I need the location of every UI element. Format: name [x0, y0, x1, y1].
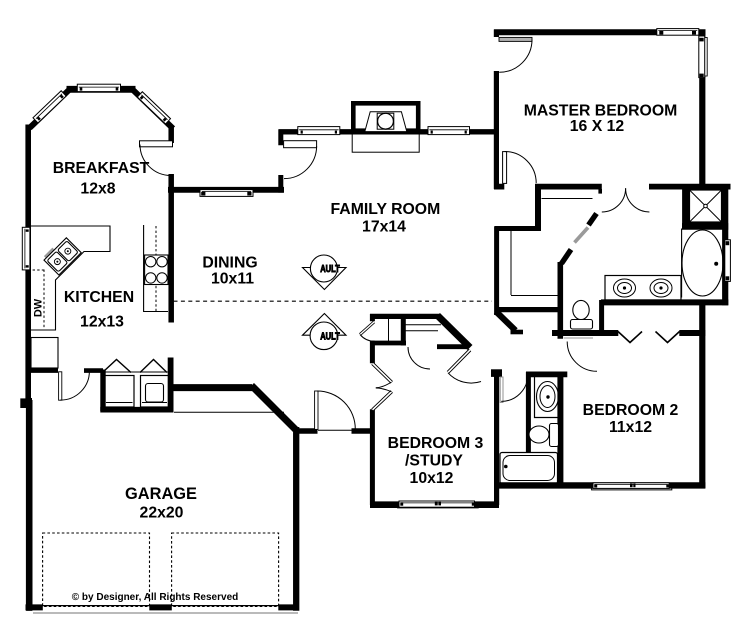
svg-text:© by Designer, All Rights Rese: © by Designer, All Rights Reserved	[72, 592, 239, 603]
svg-text:DW: DW	[33, 298, 45, 317]
svg-text:12x8: 12x8	[80, 181, 115, 198]
svg-text:22x20: 22x20	[140, 505, 184, 522]
svg-text:10x11: 10x11	[211, 271, 254, 288]
svg-text:MASTER BEDROOM: MASTER BEDROOM	[524, 102, 678, 119]
svg-text:FAMILY ROOM: FAMILY ROOM	[331, 201, 441, 218]
svg-text:17x14: 17x14	[362, 219, 406, 236]
svg-text:DINING: DINING	[202, 255, 257, 272]
svg-text:AULT: AULT	[320, 264, 340, 275]
svg-text:/STUDY: /STUDY	[405, 453, 463, 470]
svg-text:BEDROOM 2: BEDROOM 2	[583, 402, 679, 419]
svg-text:KITCHEN: KITCHEN	[64, 289, 134, 306]
svg-text:BREAKFAST: BREAKFAST	[53, 160, 150, 177]
svg-text:12x13: 12x13	[80, 314, 124, 331]
svg-text:AULT: AULT	[320, 332, 340, 343]
svg-text:11x12: 11x12	[609, 419, 652, 436]
svg-text:BEDROOM 3: BEDROOM 3	[388, 435, 484, 452]
svg-text:10x12: 10x12	[410, 470, 454, 487]
svg-text:GARAGE: GARAGE	[125, 485, 197, 503]
svg-text:16 X 12: 16 X 12	[570, 118, 625, 135]
